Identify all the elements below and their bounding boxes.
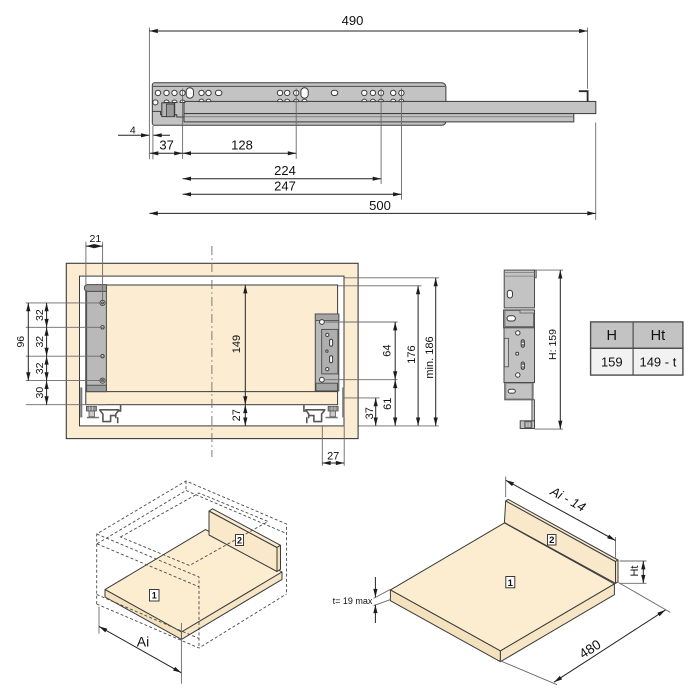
svg-text:27: 27 — [327, 450, 339, 462]
svg-text:149: 149 — [231, 335, 243, 353]
svg-text:30: 30 — [34, 387, 46, 399]
svg-text:H: 159: H: 159 — [547, 329, 559, 360]
svg-text:64: 64 — [382, 344, 394, 356]
svg-text:149 - t: 149 - t — [639, 354, 676, 369]
svg-text:H: H — [607, 328, 617, 344]
svg-text:490: 490 — [342, 13, 364, 28]
svg-text:247: 247 — [274, 178, 296, 193]
svg-text:t= 19 max: t= 19 max — [333, 596, 373, 606]
svg-text:4: 4 — [130, 124, 136, 136]
svg-text:21: 21 — [90, 233, 102, 245]
svg-text:2: 2 — [237, 535, 242, 545]
svg-text:Ht: Ht — [629, 566, 641, 577]
svg-text:27: 27 — [231, 409, 243, 421]
svg-text:224: 224 — [274, 163, 296, 178]
svg-text:32: 32 — [34, 336, 46, 348]
svg-text:2: 2 — [549, 535, 554, 546]
svg-text:96: 96 — [15, 336, 27, 348]
svg-text:Ai: Ai — [137, 633, 149, 649]
svg-text:176: 176 — [406, 345, 418, 363]
svg-text:37: 37 — [364, 407, 376, 419]
svg-text:500: 500 — [369, 198, 391, 213]
svg-text:1: 1 — [152, 591, 157, 601]
svg-text:159: 159 — [601, 354, 623, 369]
svg-text:32: 32 — [34, 309, 46, 321]
svg-text:128: 128 — [231, 137, 253, 152]
svg-text:61: 61 — [382, 398, 394, 410]
svg-text:Ht: Ht — [651, 328, 666, 344]
svg-text:min. 186: min. 186 — [424, 336, 436, 378]
svg-text:32: 32 — [34, 362, 46, 374]
svg-text:37: 37 — [159, 137, 173, 152]
svg-text:1: 1 — [508, 578, 514, 589]
